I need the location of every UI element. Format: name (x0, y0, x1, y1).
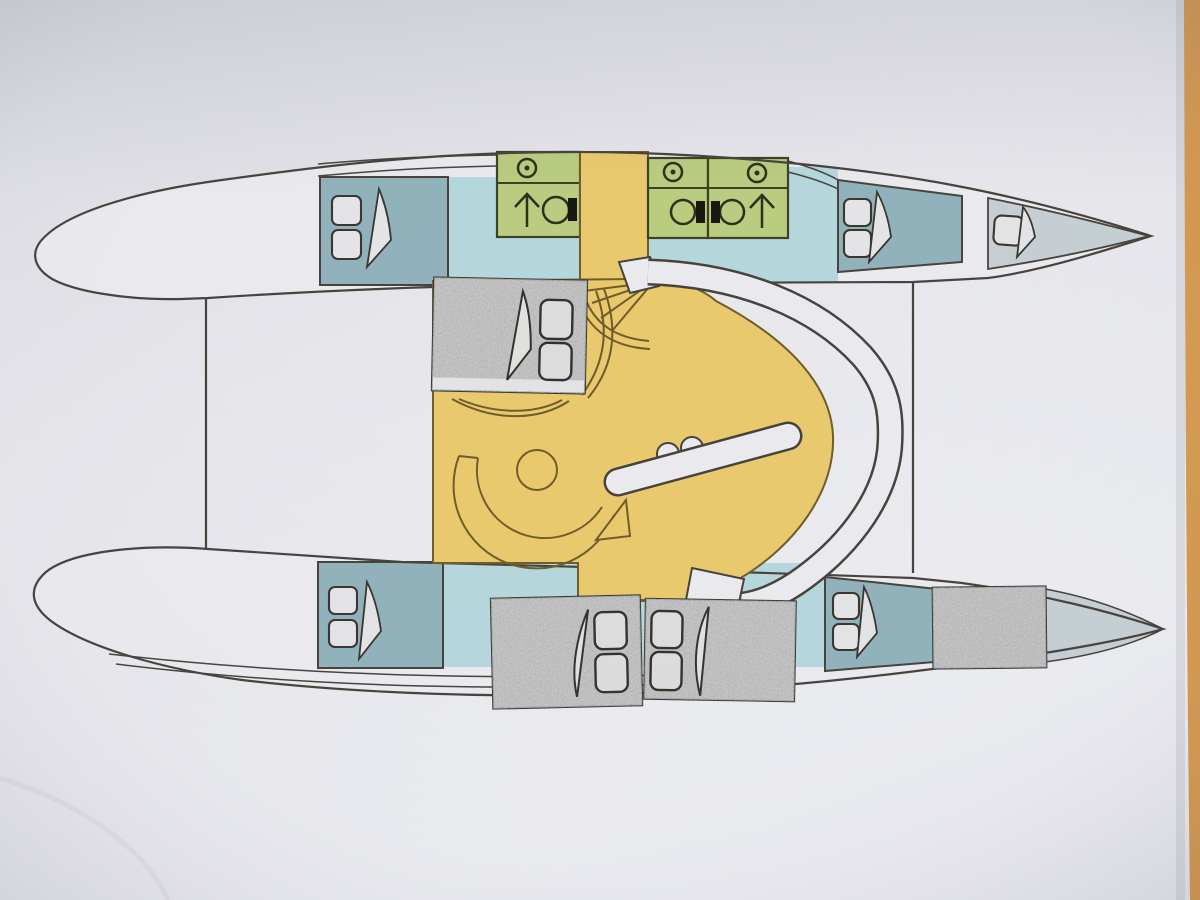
photo-environment (0, 0, 1200, 900)
photo-of-floor-plan (0, 0, 1200, 900)
top-shade (0, 0, 1200, 900)
floor-plan-canvas (0, 0, 1200, 900)
